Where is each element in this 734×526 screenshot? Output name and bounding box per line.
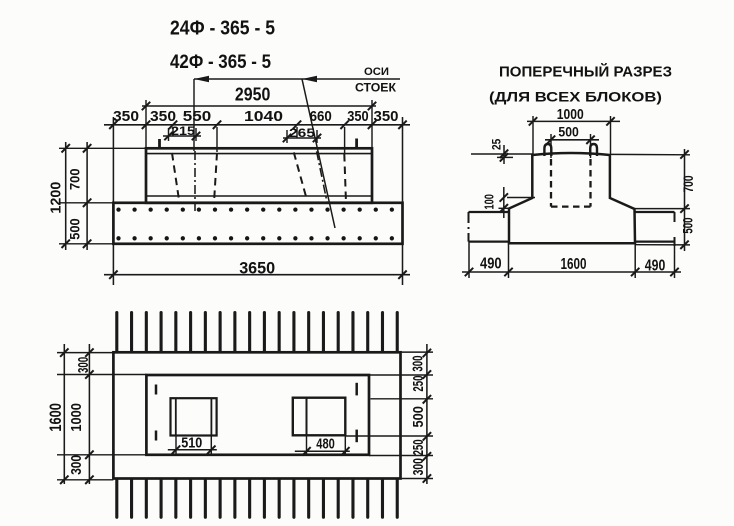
svg-text:100: 100 (483, 194, 497, 209)
svg-text:500: 500 (558, 123, 579, 139)
svg-text:480: 480 (316, 435, 335, 452)
svg-text:1600: 1600 (561, 256, 587, 273)
svg-text:1000: 1000 (557, 107, 584, 123)
svg-text:24Ф - 365 - 5: 24Ф - 365 - 5 (170, 18, 275, 40)
svg-text:ОСИ: ОСИ (364, 66, 389, 78)
svg-text:250: 250 (410, 439, 427, 455)
svg-text:700: 700 (66, 168, 82, 190)
svg-text:350: 350 (150, 108, 176, 125)
svg-text:250: 250 (410, 376, 427, 392)
svg-text:490: 490 (480, 256, 502, 273)
svg-text:350: 350 (113, 108, 139, 125)
svg-text:700: 700 (680, 175, 696, 192)
svg-text:350: 350 (347, 108, 368, 125)
svg-text:500: 500 (67, 218, 83, 240)
svg-text:265: 265 (289, 128, 316, 140)
svg-text:490: 490 (645, 258, 666, 275)
svg-text:1000: 1000 (68, 403, 85, 432)
svg-text:500: 500 (410, 406, 427, 427)
svg-text:1200: 1200 (49, 182, 65, 214)
svg-text:25: 25 (490, 138, 504, 150)
svg-text:ПОПЕРЕЧНЫЙ РАЗРЕЗ: ПОПЕРЕЧНЫЙ РАЗРЕЗ (499, 63, 672, 81)
svg-text:300: 300 (68, 455, 85, 475)
svg-text:215: 215 (171, 126, 196, 138)
svg-text:300: 300 (410, 458, 427, 475)
svg-text:42Ф - 365 - 5: 42Ф - 365 - 5 (170, 52, 271, 73)
svg-text:1040: 1040 (244, 108, 283, 125)
svg-text:3650: 3650 (239, 259, 275, 278)
svg-text:510: 510 (181, 434, 202, 451)
svg-text:350: 350 (374, 108, 399, 125)
svg-text:СТОЕК: СТОЕК (355, 83, 397, 95)
svg-text:500: 500 (680, 217, 696, 233)
svg-text:(ДЛЯ ВСЕХ БЛОКОВ): (ДЛЯ ВСЕХ БЛОКОВ) (489, 89, 662, 105)
svg-text:550: 550 (183, 108, 211, 125)
svg-text:1600: 1600 (47, 403, 65, 432)
svg-text:2950: 2950 (235, 85, 270, 105)
svg-text:300: 300 (410, 356, 427, 372)
svg-text:300: 300 (75, 357, 92, 373)
svg-text:660: 660 (310, 108, 332, 125)
